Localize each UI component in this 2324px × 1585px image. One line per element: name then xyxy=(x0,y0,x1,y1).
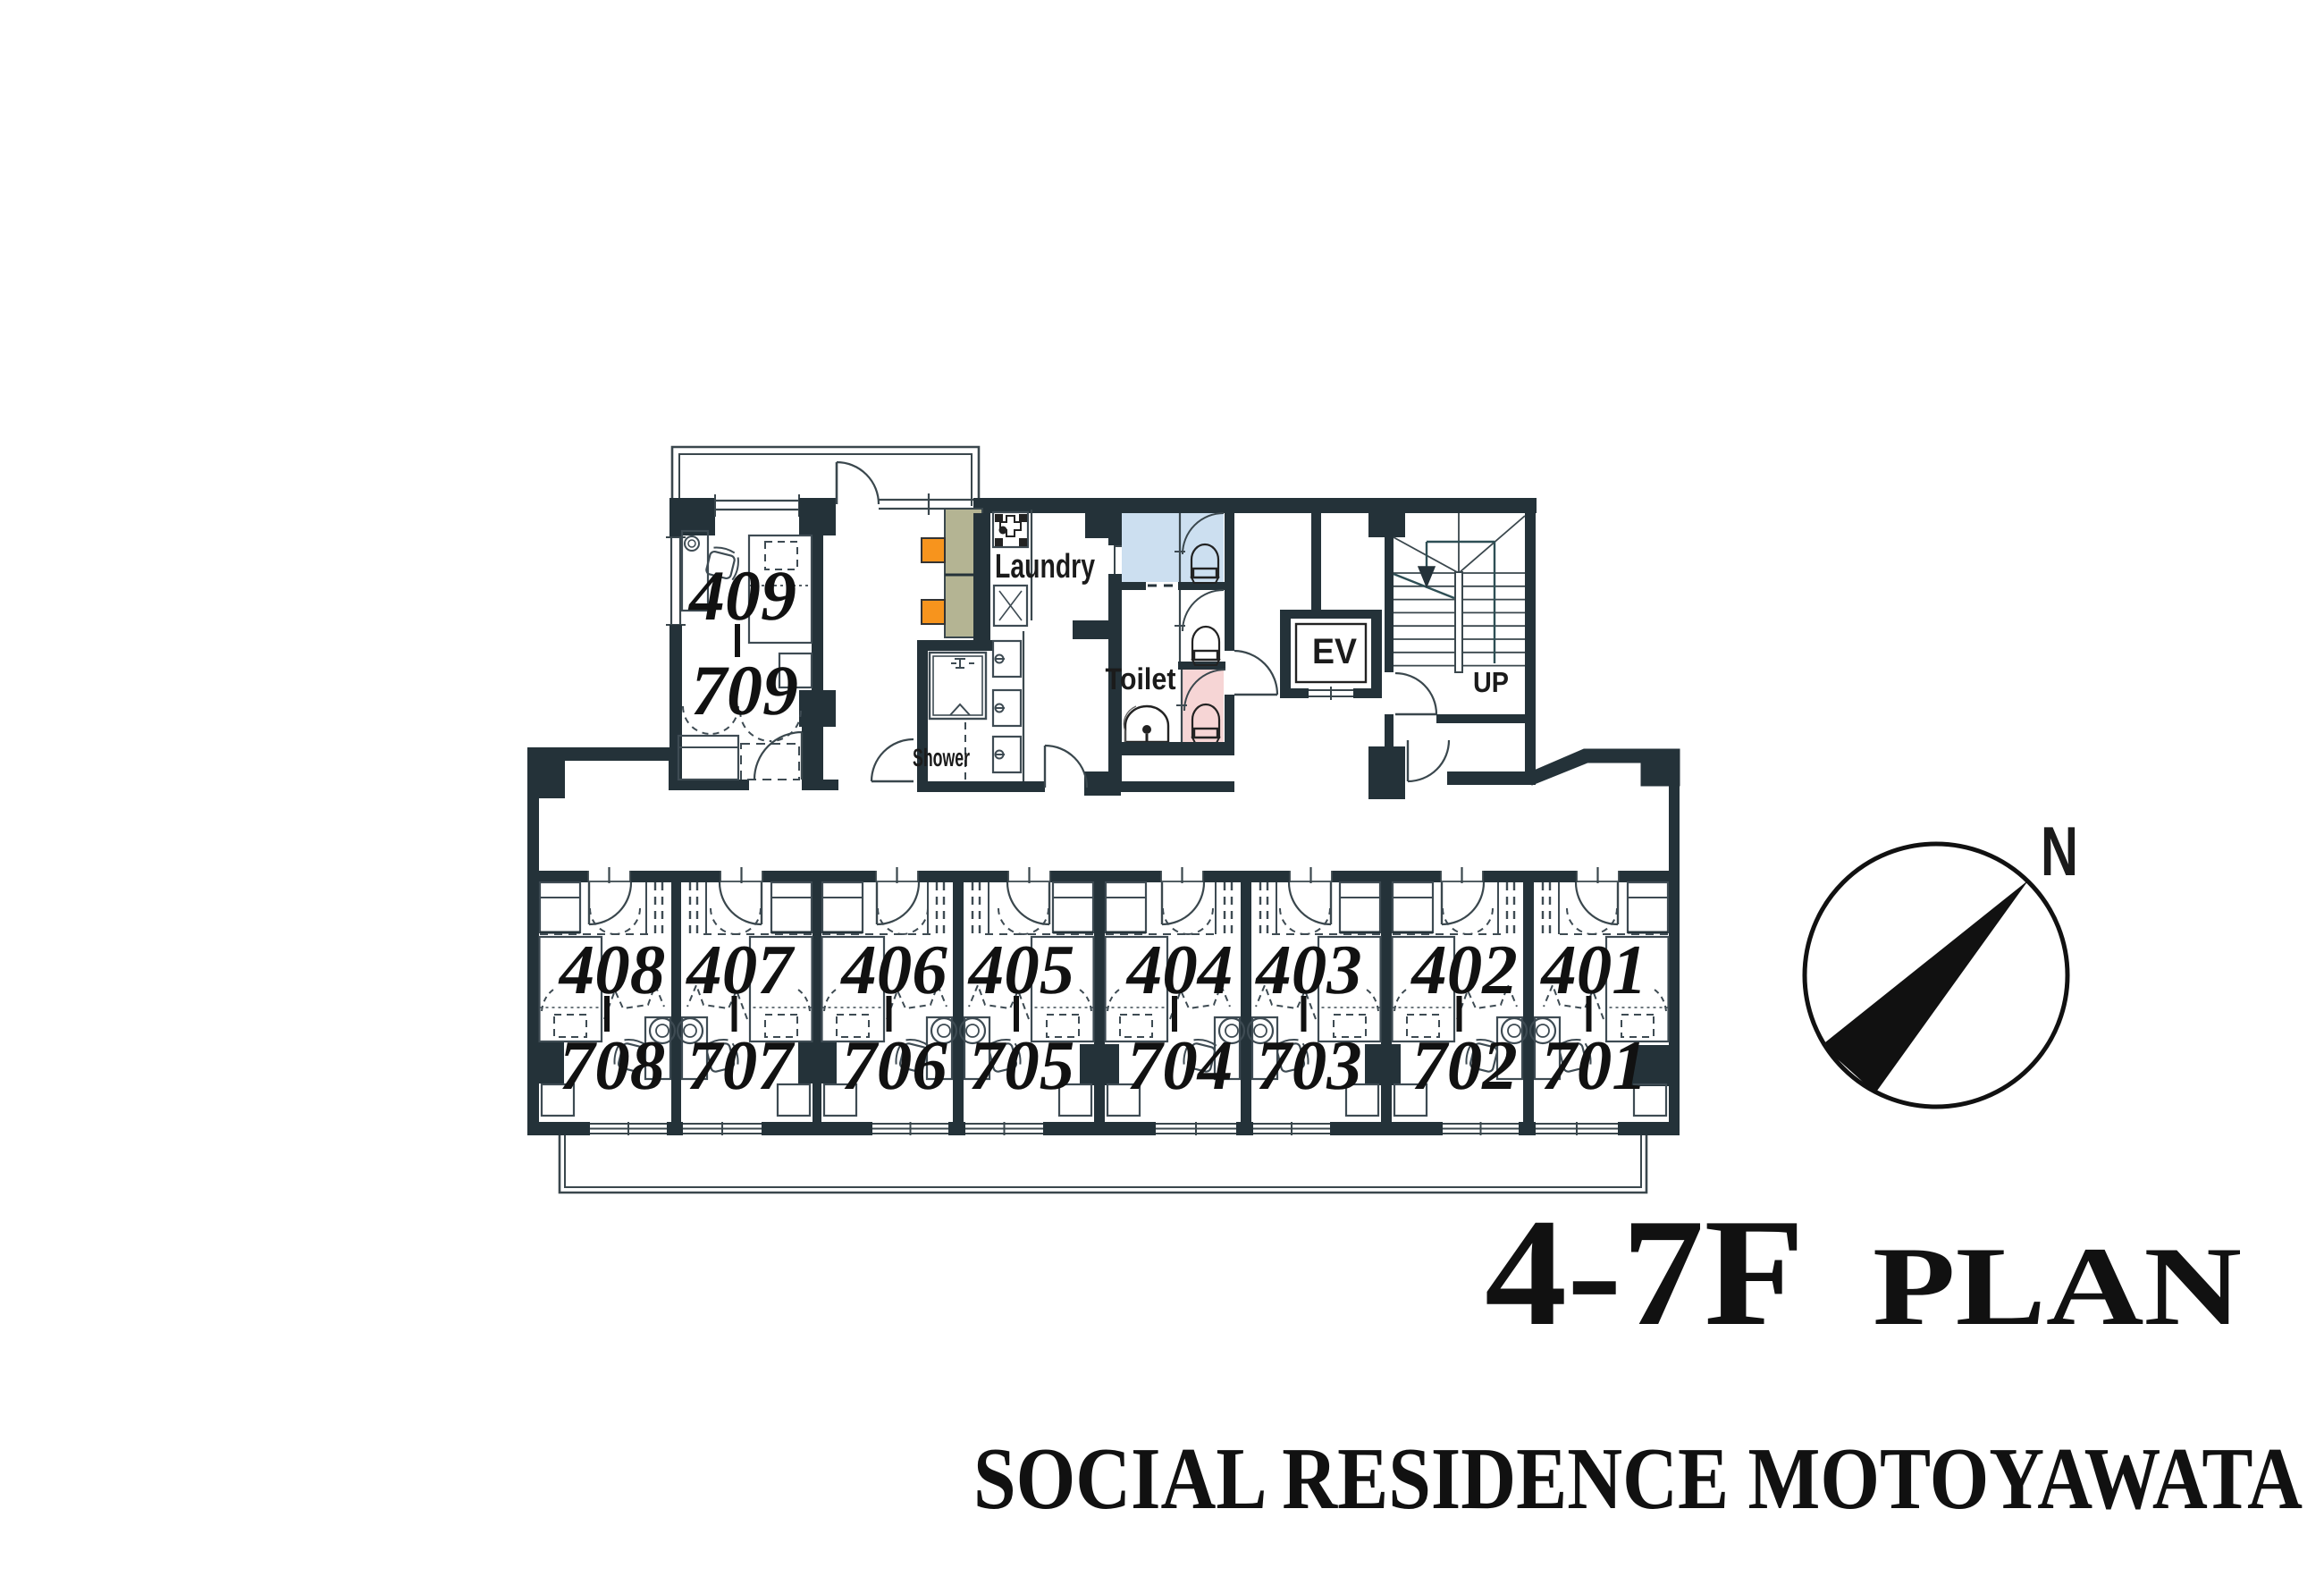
svg-text:405: 405 xyxy=(967,932,1075,1009)
svg-text:705: 705 xyxy=(969,1027,1075,1105)
svg-text:704: 704 xyxy=(1127,1027,1234,1105)
svg-text:702: 702 xyxy=(1411,1027,1518,1105)
svg-text:407: 407 xyxy=(685,932,796,1009)
svg-text:N: N xyxy=(2041,812,2078,890)
svg-text:409: 409 xyxy=(687,557,796,636)
svg-text:408: 408 xyxy=(558,932,666,1009)
svg-text:401: 401 xyxy=(1539,932,1647,1009)
svg-text:Toilet: Toilet xyxy=(1106,662,1176,696)
svg-text:703: 703 xyxy=(1256,1027,1362,1105)
svg-text:EV: EV xyxy=(1312,632,1357,671)
svg-text:406: 406 xyxy=(839,932,947,1009)
svg-text:709: 709 xyxy=(691,652,798,730)
svg-text:706: 706 xyxy=(841,1027,947,1105)
svg-text:Laundry: Laundry xyxy=(995,548,1095,586)
svg-text:UP: UP xyxy=(1473,666,1509,698)
svg-text:404: 404 xyxy=(1125,932,1234,1009)
svg-text:708: 708 xyxy=(560,1027,666,1105)
svg-text:402: 402 xyxy=(1410,932,1518,1009)
svg-text:PLAN: PLAN xyxy=(1873,1225,2242,1349)
svg-text:4-7F: 4-7F xyxy=(1485,1188,1805,1358)
svg-text:707: 707 xyxy=(686,1027,796,1105)
svg-text:Shower: Shower xyxy=(913,744,970,771)
svg-text:403: 403 xyxy=(1254,932,1362,1009)
svg-text:SOCIAL RESIDENCE MOTOYAWATA: SOCIAL RESIDENCE MOTOYAWATA xyxy=(973,1430,2303,1528)
svg-text:701: 701 xyxy=(1541,1027,1647,1105)
